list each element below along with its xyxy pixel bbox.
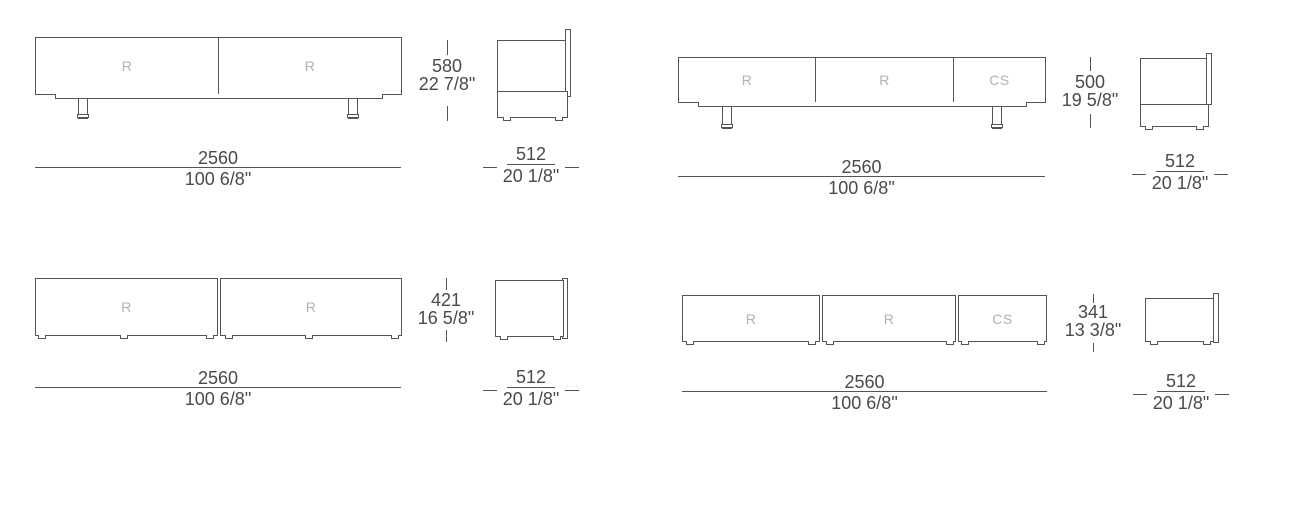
depth-mm-label: 512: [1132, 153, 1228, 170]
side-view-body: [1140, 58, 1207, 105]
depth-inch-label: 20 1/8": [1133, 395, 1229, 412]
glide-foot: [120, 335, 128, 339]
glide-foot: [1145, 126, 1153, 130]
glide-foot: [38, 335, 46, 339]
glide-foot: [225, 335, 233, 339]
technical-drawing-canvas: R R 2560 100 6/8" 580 22 7/8": [0, 0, 1289, 532]
height-inch-label: 13 3/8": [1065, 321, 1121, 339]
width-inch-label: 100 6/8": [35, 391, 401, 408]
compartment: CS: [959, 296, 1046, 341]
extension-tick: [1090, 114, 1091, 128]
width-mm-label: 2560: [35, 370, 401, 387]
plinth: [698, 102, 1027, 107]
extension-tick: [446, 278, 447, 290]
extension-tick: [447, 106, 448, 121]
depth-dimension: 512 20 1/8": [1132, 153, 1228, 193]
side-view-body: [495, 280, 564, 337]
glide-foot: [808, 341, 816, 345]
leg-foot: [991, 124, 1003, 128]
leg-foot: [77, 114, 89, 118]
side-view-body: [1145, 298, 1214, 342]
glide-foot: [686, 341, 694, 345]
leg-left: [78, 99, 88, 119]
front-view: R R CS: [678, 57, 1046, 103]
glide-foot: [391, 335, 399, 339]
compartment: CS: [954, 58, 1045, 102]
side-view-base: [497, 91, 568, 118]
glide-foot: [553, 336, 561, 340]
dimension-line: [507, 164, 555, 165]
front-view-module: R: [682, 295, 820, 342]
leg-foot: [721, 124, 733, 128]
glide-foot: [826, 341, 834, 345]
width-inch-label: 100 6/8": [682, 395, 1047, 412]
width-dimension: 2560 100 6/8": [35, 370, 401, 408]
height-dimension: 341 13 3/8": [1053, 294, 1133, 352]
glide-foot: [1037, 341, 1045, 345]
front-view-module: R: [220, 278, 402, 336]
depth-mm-label: 512: [483, 146, 579, 163]
width-mm-label: 2560: [682, 374, 1047, 391]
front-view-module: R: [822, 295, 956, 342]
height-mm-label: 421: [431, 291, 461, 309]
width-dimension: 2560 100 6/8": [678, 159, 1045, 197]
depth-dimension: 512 20 1/8": [483, 369, 579, 409]
glide-foot: [305, 335, 313, 339]
extension-tick: [447, 40, 448, 55]
module-label: R: [306, 299, 317, 315]
leg-right: [348, 99, 358, 119]
module-label: R: [742, 72, 753, 88]
glide-foot: [503, 117, 511, 121]
width-inch-label: 100 6/8": [678, 180, 1045, 197]
depth-mm-label: 512: [1133, 373, 1229, 390]
height-dimension: 421 16 5/8": [406, 278, 486, 342]
glide-foot: [500, 336, 508, 340]
depth-mm-label: 512: [483, 369, 579, 386]
height-dimension: 580 22 7/8": [407, 40, 487, 121]
module-label: R: [884, 311, 895, 327]
glide-foot: [1203, 341, 1211, 345]
compartment: R: [679, 58, 816, 102]
glide-foot: [946, 341, 954, 345]
glide-foot: [1196, 126, 1204, 130]
compartment: R: [36, 279, 217, 335]
module-label: R: [879, 72, 890, 88]
dimension-line: [1157, 391, 1205, 392]
height-inch-label: 19 5/8": [1062, 91, 1118, 109]
depth-dimension: 512 20 1/8": [483, 146, 579, 186]
depth-dimension: 512 20 1/8": [1133, 373, 1229, 413]
height-dimension: 500 19 5/8": [1050, 57, 1130, 128]
dimension-line: [1156, 171, 1204, 172]
compartment: R: [823, 296, 955, 341]
leg-left: [722, 107, 732, 129]
glide-foot: [555, 117, 563, 121]
plinth: [55, 94, 383, 99]
glide-foot: [961, 341, 969, 345]
compartment: R: [683, 296, 819, 341]
height-mm-label: 580: [432, 57, 462, 75]
leg-foot: [347, 114, 359, 118]
height-inch-label: 22 7/8": [419, 75, 475, 93]
height-inch-label: 16 5/8": [418, 309, 474, 327]
front-view-module: R: [35, 278, 218, 336]
height-mm-label: 500: [1075, 73, 1105, 91]
dimension-line: [507, 387, 555, 388]
module-label: R: [122, 58, 133, 74]
compartment: R: [219, 38, 401, 94]
extension-tick: [1090, 57, 1091, 71]
front-view: R R: [35, 37, 402, 95]
module-label: R: [746, 311, 757, 327]
leg-right: [992, 107, 1002, 129]
width-mm-label: 2560: [35, 150, 401, 167]
depth-inch-label: 20 1/8": [1132, 175, 1228, 192]
width-dimension: 2560 100 6/8": [682, 374, 1047, 412]
glide-foot: [1150, 341, 1158, 345]
extension-tick: [1093, 343, 1094, 352]
front-view-module: CS: [958, 295, 1047, 342]
compartment: R: [816, 58, 954, 102]
module-label: CS: [992, 311, 1012, 327]
depth-inch-label: 20 1/8": [483, 391, 579, 408]
side-view-body: [497, 40, 566, 92]
width-dimension: 2560 100 6/8": [35, 150, 401, 188]
glide-foot: [206, 335, 214, 339]
depth-inch-label: 20 1/8": [483, 168, 579, 185]
height-mm-label: 341: [1078, 303, 1108, 321]
extension-tick: [446, 330, 447, 342]
width-inch-label: 100 6/8": [35, 171, 401, 188]
module-label: R: [305, 58, 316, 74]
module-label: CS: [989, 72, 1009, 88]
module-label: R: [121, 299, 132, 315]
compartment: R: [36, 38, 219, 94]
width-mm-label: 2560: [678, 159, 1045, 176]
side-view-base: [1140, 104, 1209, 127]
compartment: R: [221, 279, 401, 335]
